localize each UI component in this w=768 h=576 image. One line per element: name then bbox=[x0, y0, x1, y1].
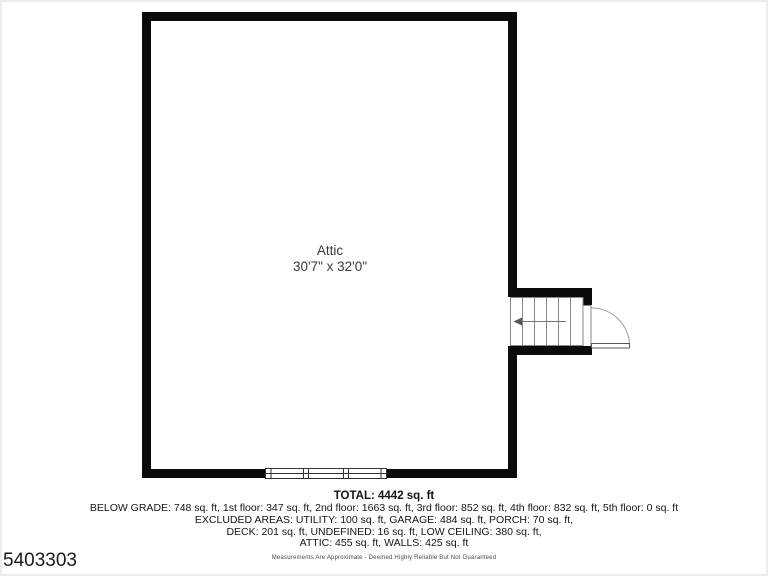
plan-id: 5403303 bbox=[3, 550, 77, 572]
door-swing bbox=[592, 308, 630, 348]
wall-right-lower bbox=[508, 346, 517, 478]
measurement-disclaimer: Measurements Are Approximate - Deemed Hi… bbox=[0, 555, 768, 561]
alcove-wall-top bbox=[508, 288, 592, 297]
room-dimensions-label: 30'7" x 32'0" bbox=[230, 259, 430, 275]
alcove-wall-bottom bbox=[508, 346, 592, 355]
excluded-areas-line-3: ATTIC: 455 sq. ft, WALLS: 425 sq. ft bbox=[0, 538, 768, 550]
total-area-line: TOTAL: 4442 sq. ft bbox=[0, 489, 768, 503]
door-leaf bbox=[592, 344, 630, 349]
wall-bottom-right bbox=[386, 469, 517, 478]
area-summary: TOTAL: 4442 sq. ft BELOW GRADE: 748 sq. … bbox=[0, 489, 768, 550]
wall-right-upper bbox=[508, 12, 517, 289]
doorway bbox=[584, 306, 592, 347]
excluded-areas-line-1: EXCLUDED AREAS: UTILITY: 100 sq. ft, GAR… bbox=[0, 515, 768, 527]
window bbox=[266, 469, 387, 479]
wall-left bbox=[142, 12, 151, 478]
wall-bottom-left bbox=[142, 469, 266, 478]
wall-top bbox=[142, 12, 517, 21]
room-name-label: Attic bbox=[230, 243, 430, 259]
door-jamb-stub bbox=[583, 288, 592, 305]
